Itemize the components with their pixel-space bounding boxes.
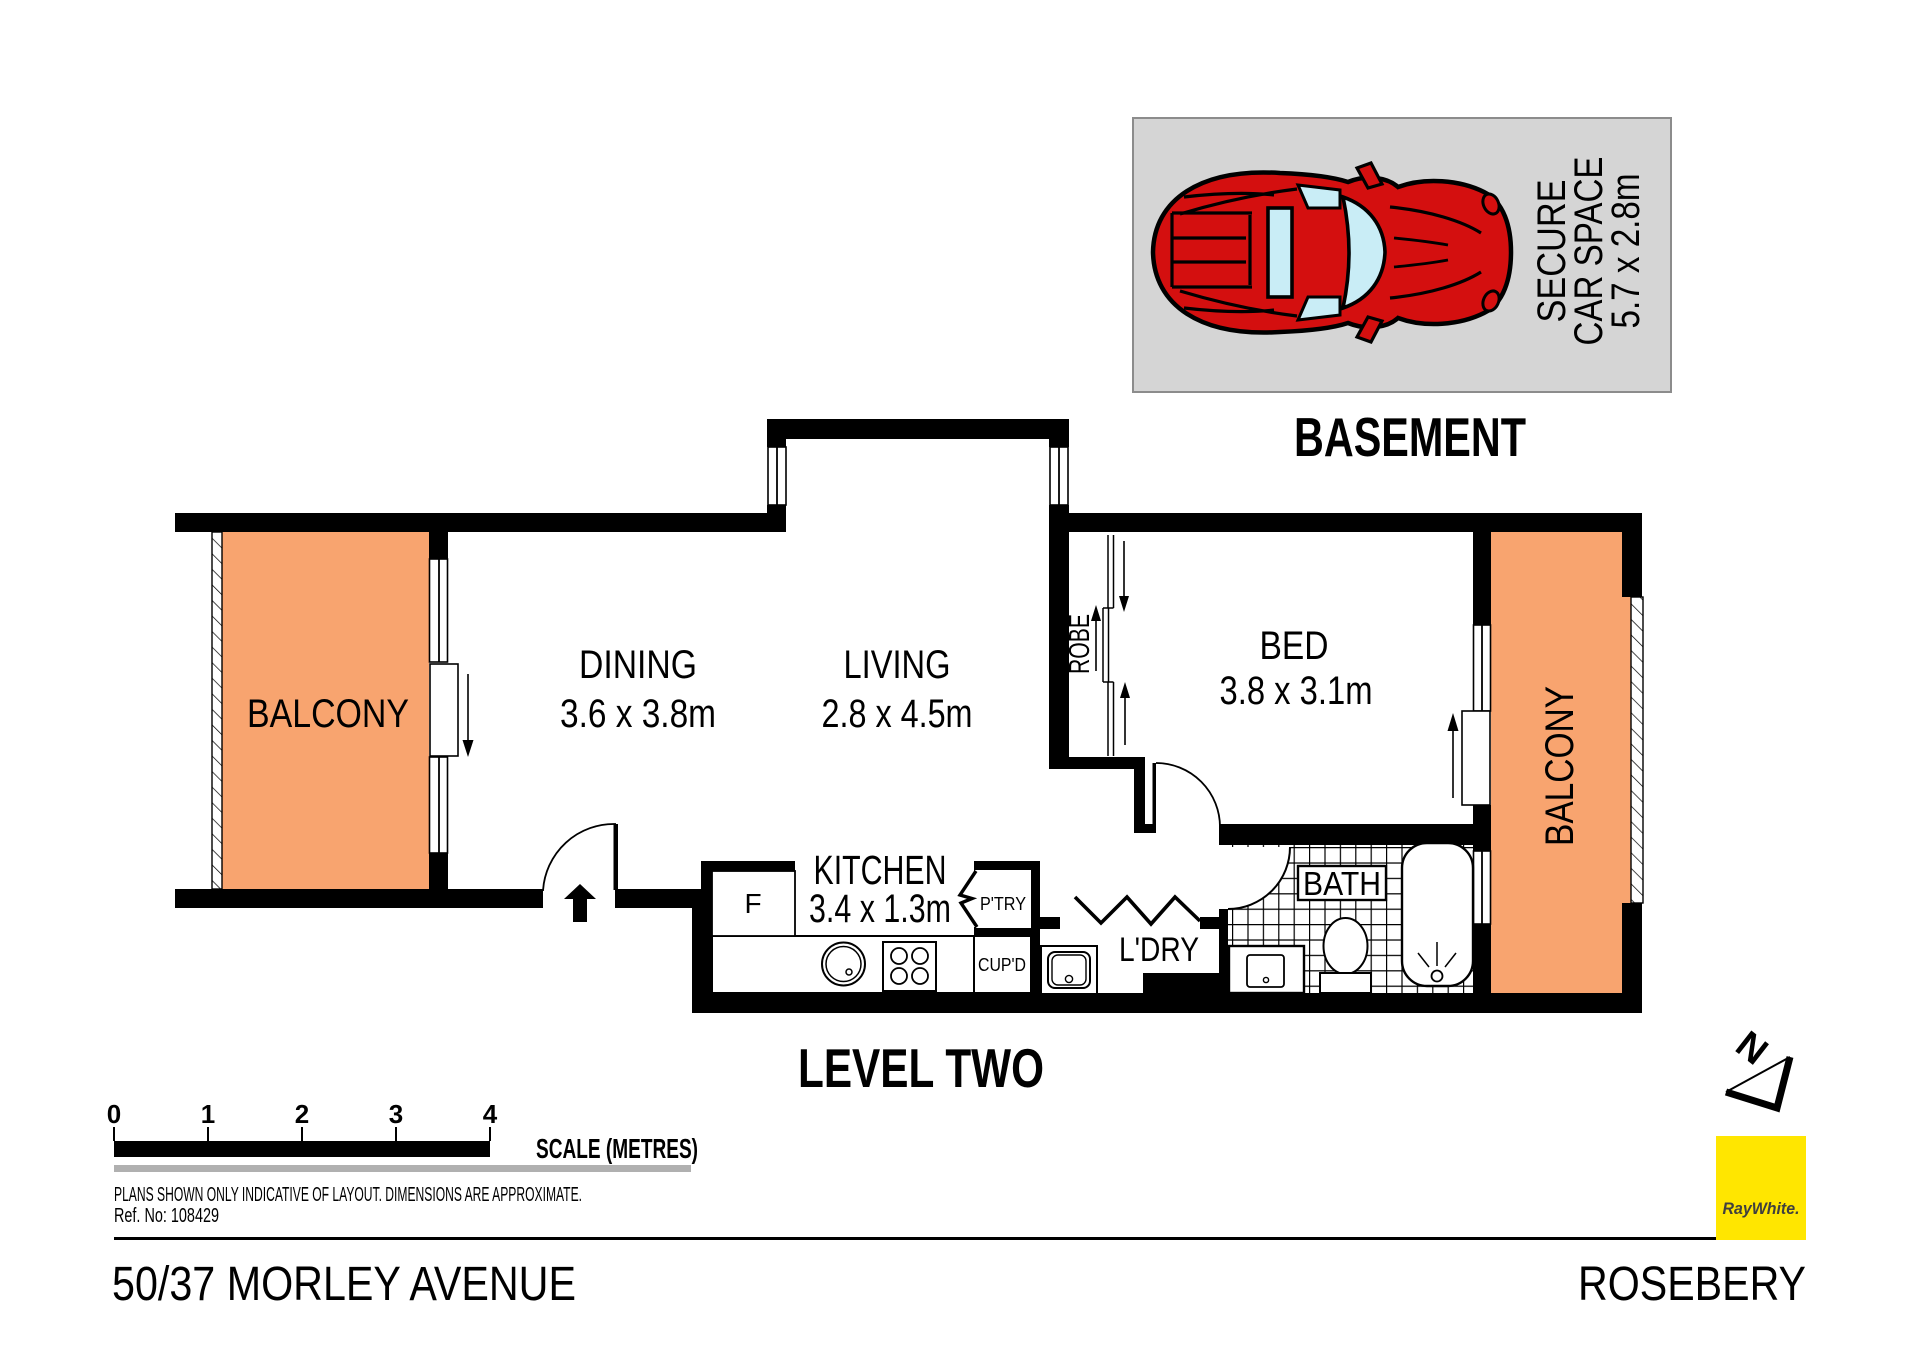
svg-text:1: 1 (201, 1099, 215, 1129)
svg-text:ROBE: ROBE (1064, 614, 1096, 674)
svg-text:F: F (744, 888, 761, 919)
svg-text:SCALE (METRES): SCALE (METRES) (536, 1133, 698, 1164)
svg-text:2.8 x 4.5m: 2.8 x 4.5m (822, 692, 973, 736)
svg-text:RayWhite.: RayWhite. (1723, 1199, 1800, 1218)
svg-text:BASEMENT: BASEMENT (1294, 406, 1526, 468)
svg-text:5.7 x 2.8m: 5.7 x 2.8m (1604, 174, 1648, 329)
svg-text:P'TRY: P'TRY (980, 894, 1026, 914)
svg-text:DINING: DINING (579, 643, 697, 687)
svg-text:BED: BED (1260, 624, 1329, 668)
svg-text:2: 2 (295, 1099, 309, 1129)
svg-text:PLANS SHOWN ONLY INDICATIVE OF: PLANS SHOWN ONLY INDICATIVE OF LAYOUT. D… (114, 1184, 582, 1206)
svg-text:LIVING: LIVING (844, 643, 951, 687)
svg-text:3.4 x 1.3m: 3.4 x 1.3m (809, 887, 951, 931)
svg-text:3.6 x 3.8m: 3.6 x 3.8m (560, 692, 716, 736)
svg-text:3: 3 (389, 1099, 403, 1129)
svg-text:BATH: BATH (1303, 865, 1381, 902)
svg-text:CUP'D: CUP'D (978, 955, 1026, 975)
svg-text:ROSEBERY: ROSEBERY (1578, 1258, 1806, 1311)
svg-text:3.8 x 3.1m: 3.8 x 3.1m (1220, 669, 1373, 713)
svg-text:50/37 MORLEY AVENUE: 50/37 MORLEY AVENUE (112, 1258, 576, 1311)
svg-text:BALCONY: BALCONY (247, 692, 409, 736)
svg-text:L'DRY: L'DRY (1119, 931, 1199, 969)
svg-text:4: 4 (483, 1099, 498, 1129)
svg-text:BALCONY: BALCONY (1538, 686, 1582, 846)
svg-text:Ref. No: 108429: Ref. No: 108429 (114, 1205, 219, 1227)
svg-text:LEVEL TWO: LEVEL TWO (798, 1037, 1044, 1099)
svg-text:0: 0 (107, 1099, 121, 1129)
